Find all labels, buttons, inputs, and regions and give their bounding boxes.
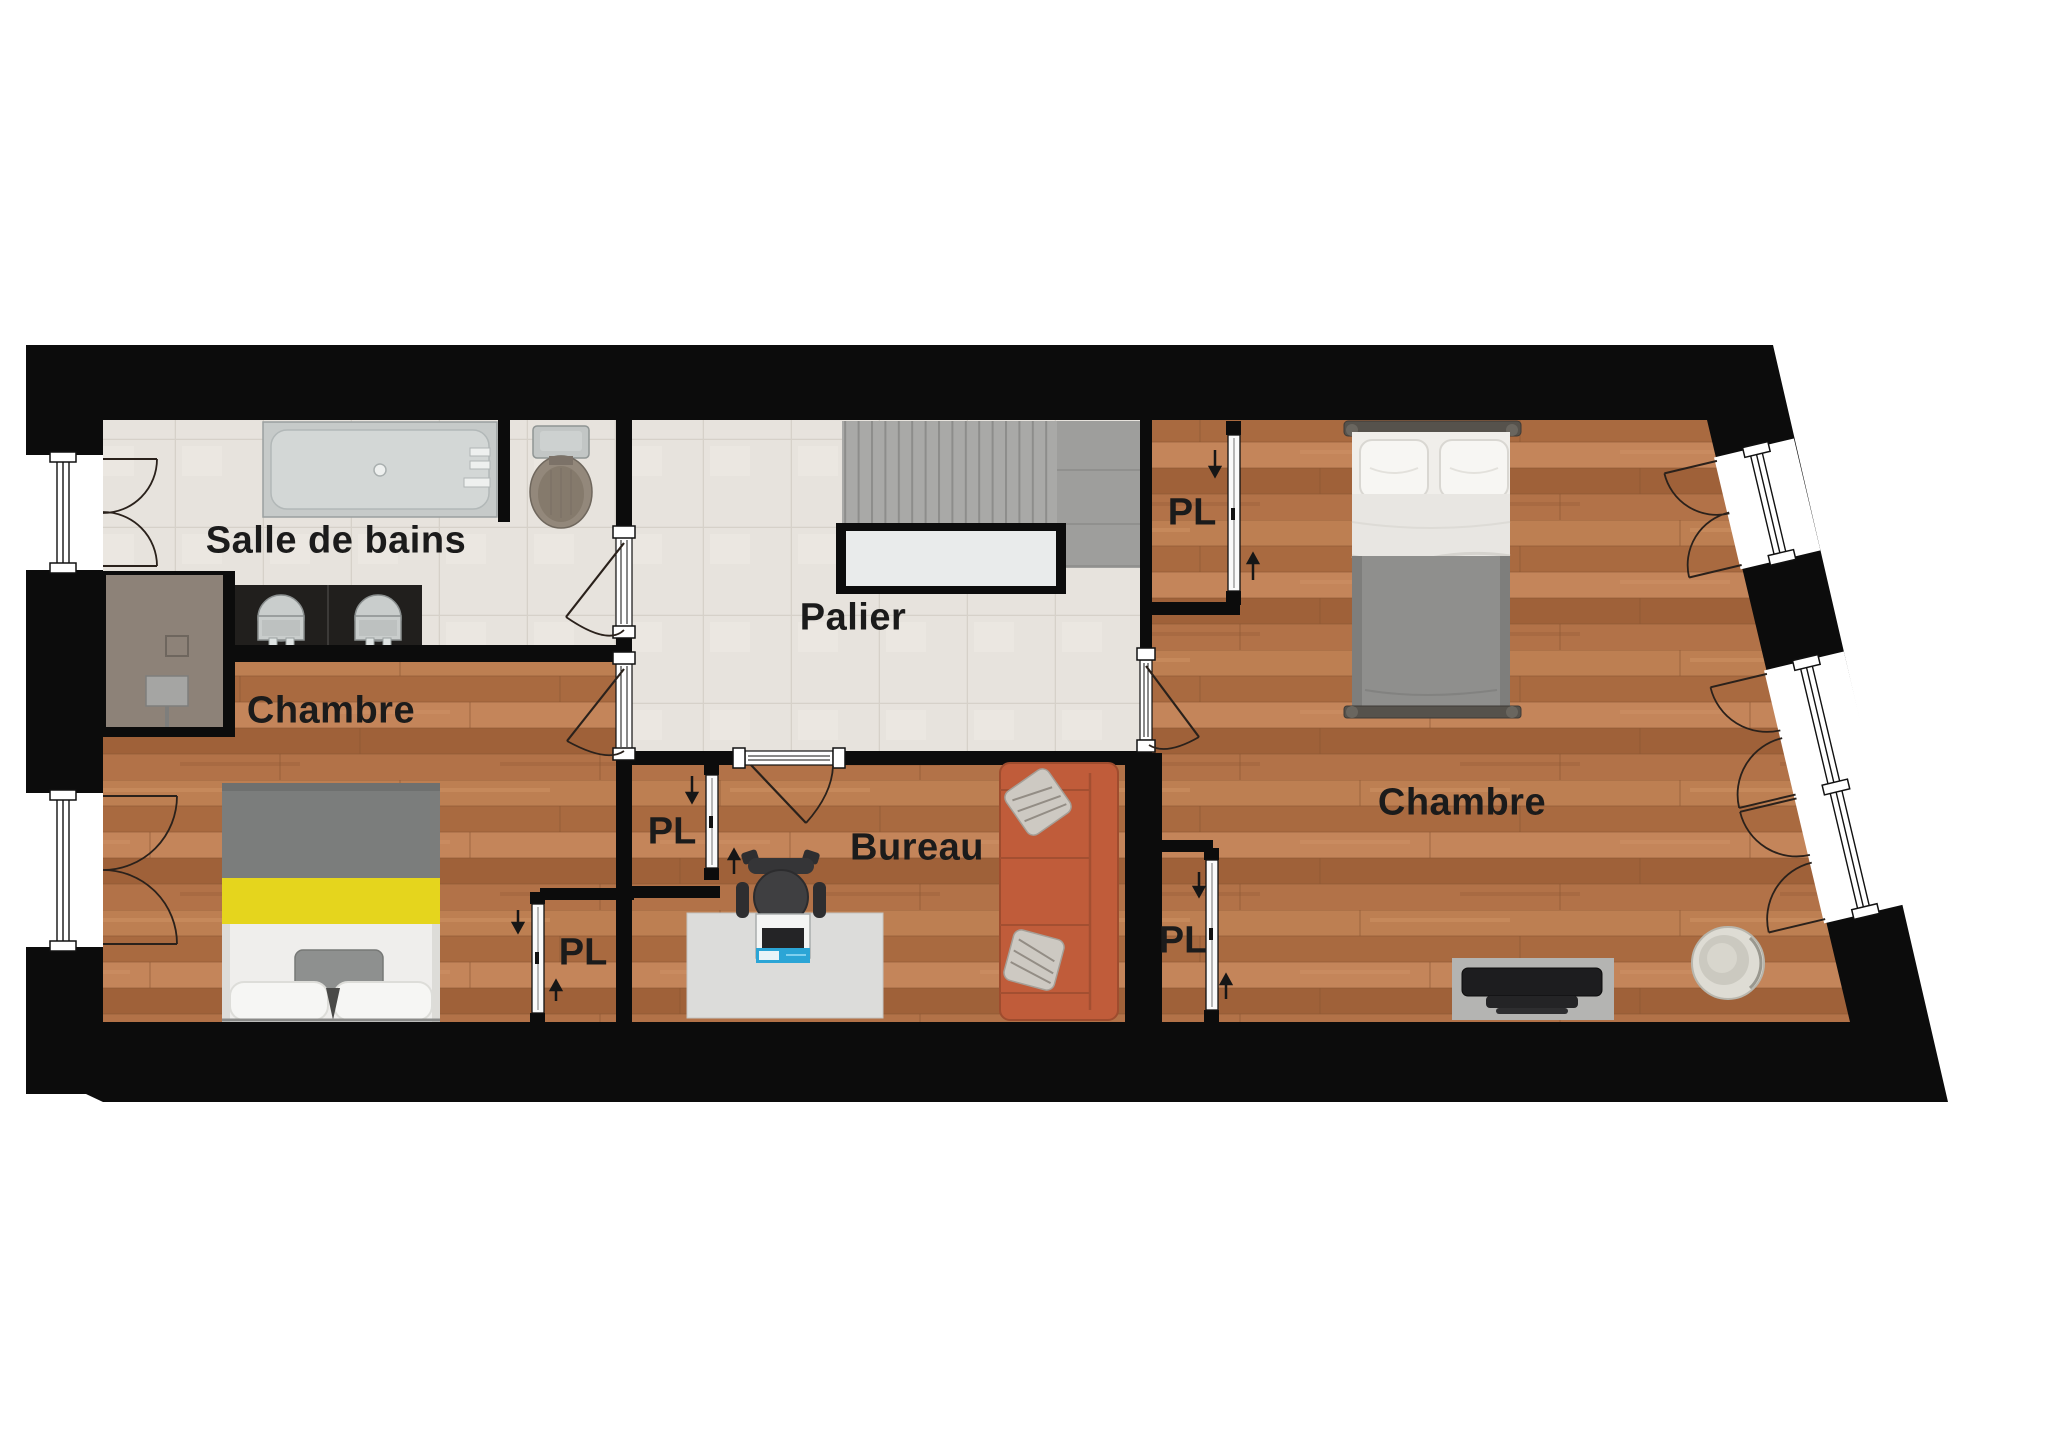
sofa (1000, 763, 1118, 1020)
laptop (756, 914, 810, 963)
bed-chambre-est (1344, 421, 1521, 718)
sliding-door-pl-chambre-ouest (530, 892, 545, 1025)
tv-unit (1452, 958, 1614, 1020)
egg-chair (1692, 927, 1764, 999)
floor-plan-svg (0, 0, 2048, 1448)
sliding-door-pl-chambre-est-haut (1226, 421, 1241, 605)
bathtub (263, 422, 497, 517)
bed-chambre-ouest (222, 783, 440, 1022)
stairwell-void (836, 523, 1066, 594)
floor-plan: Salle de bains Palier Chambre Bureau Cha… (0, 0, 2048, 1448)
double-washbasin (235, 585, 422, 652)
sliding-door-pl-bureau (704, 763, 719, 880)
bathroom-partition-wall (498, 420, 510, 522)
toilet (530, 426, 592, 528)
shower (103, 571, 235, 737)
sliding-door-pl-chambre-est-bas (1204, 848, 1219, 1022)
